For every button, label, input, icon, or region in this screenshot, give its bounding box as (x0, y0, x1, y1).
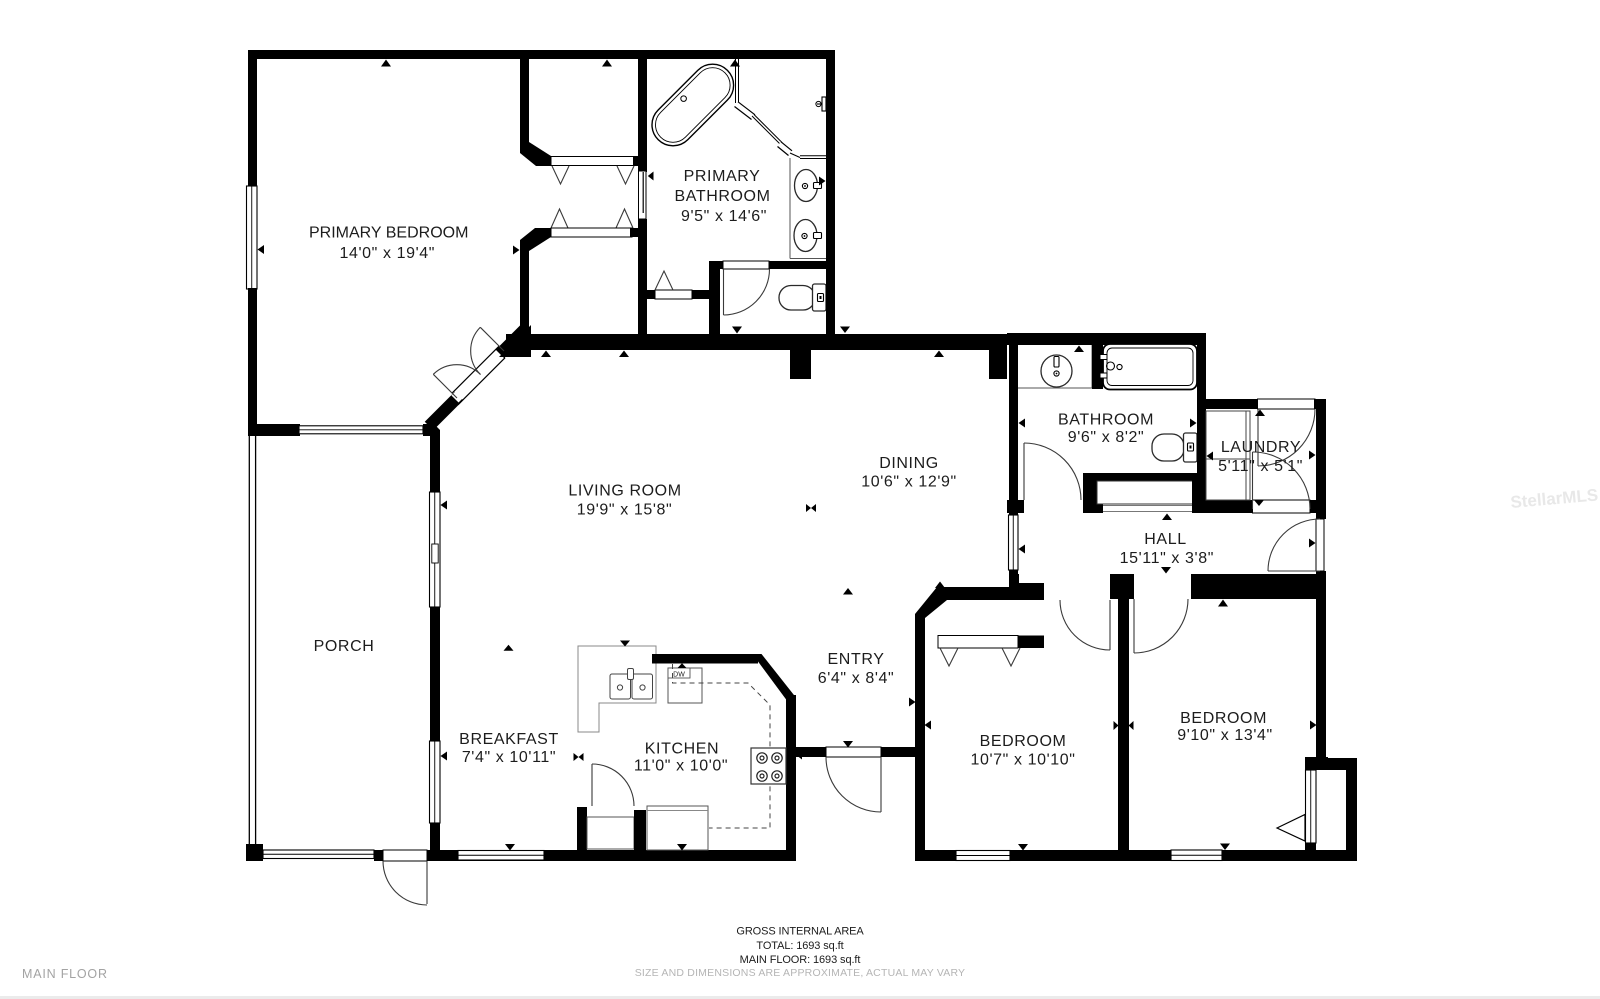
svg-text:7'4" x 10'11": 7'4" x 10'11" (462, 749, 556, 766)
svg-text:PRIMARY: PRIMARY (684, 168, 761, 185)
svg-text:HALL: HALL (1144, 531, 1186, 548)
svg-text:ENTRY: ENTRY (828, 651, 885, 668)
svg-text:BEDROOM: BEDROOM (980, 733, 1067, 750)
svg-text:6'4" x 8'4": 6'4" x 8'4" (818, 670, 895, 687)
svg-text:LAUNDRY: LAUNDRY (1221, 439, 1301, 456)
svg-text:KITCHEN: KITCHEN (645, 741, 719, 758)
svg-text:PRIMARY BEDROOM: PRIMARY BEDROOM (309, 225, 468, 242)
svg-text:SIZE AND DIMENSIONS ARE APPROX: SIZE AND DIMENSIONS ARE APPROXIMATE, ACT… (635, 967, 966, 979)
svg-text:PORCH: PORCH (314, 638, 375, 655)
svg-text:MAIN FLOOR: 1693 sq.ft: MAIN FLOOR: 1693 sq.ft (740, 954, 861, 966)
svg-text:BATHROOM: BATHROOM (674, 188, 770, 205)
svg-text:9'5" x 14'6": 9'5" x 14'6" (681, 208, 767, 225)
svg-text:BEDROOM: BEDROOM (1180, 710, 1267, 727)
svg-text:DINING: DINING (879, 455, 939, 472)
svg-text:15'11" x 3'8": 15'11" x 3'8" (1120, 550, 1214, 567)
svg-text:MAIN FLOOR: MAIN FLOOR (22, 967, 108, 981)
svg-text:GROSS INTERNAL AREA: GROSS INTERNAL AREA (736, 926, 864, 938)
svg-text:BATHROOM: BATHROOM (1058, 412, 1154, 429)
svg-text:9'10" x 13'4": 9'10" x 13'4" (1177, 727, 1273, 744)
svg-text:10'6" x 12'9": 10'6" x 12'9" (861, 474, 957, 491)
svg-text:BREAKFAST: BREAKFAST (459, 731, 559, 748)
svg-text:14'0" x 19'4": 14'0" x 19'4" (340, 245, 436, 262)
svg-text:DW: DW (673, 672, 685, 679)
svg-text:LIVING ROOM: LIVING ROOM (568, 483, 681, 500)
svg-text:TOTAL: 1693 sq.ft: TOTAL: 1693 sq.ft (756, 940, 843, 952)
svg-text:5'11" x 5'1": 5'11" x 5'1" (1218, 458, 1303, 475)
svg-text:9'6" x 8'2": 9'6" x 8'2" (1068, 429, 1145, 446)
svg-text:11'0" x 10'0": 11'0" x 10'0" (634, 758, 728, 775)
svg-text:10'7" x 10'10": 10'7" x 10'10" (970, 752, 1075, 769)
svg-text:19'9" x 15'8": 19'9" x 15'8" (577, 502, 673, 519)
